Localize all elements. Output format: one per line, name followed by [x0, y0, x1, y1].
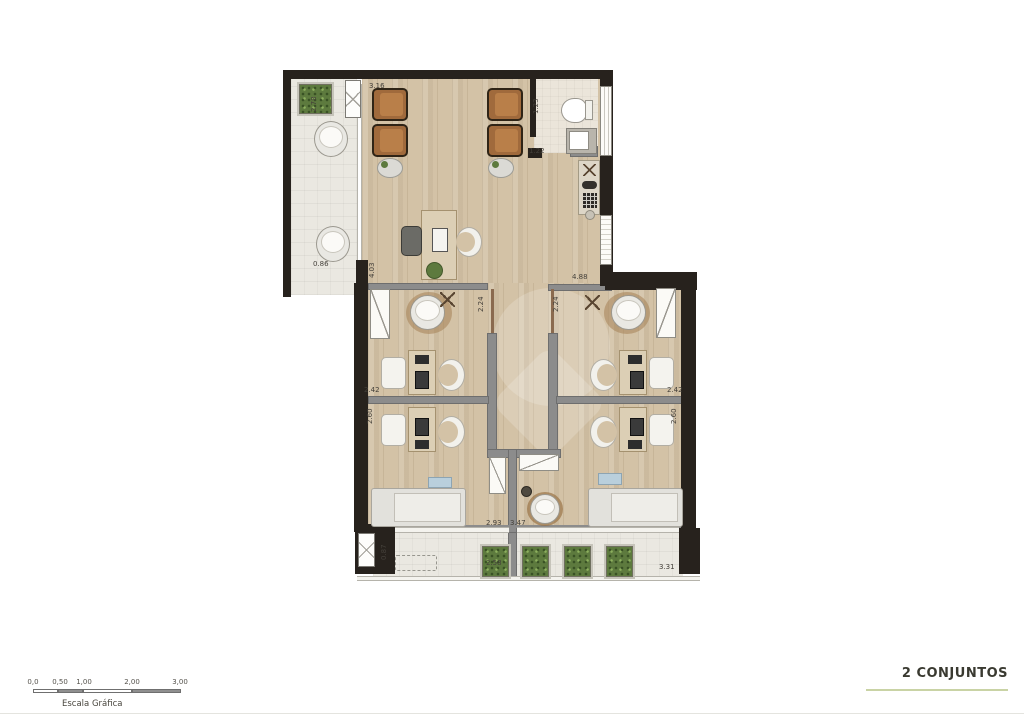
scale-caption: Escala Gráfica: [62, 699, 122, 709]
wall-stub-window-end: [356, 260, 368, 295]
wall-left-balcony: [283, 70, 291, 297]
shaft-bottom-left: [358, 533, 375, 567]
dim-label: 2.93: [486, 520, 502, 527]
vestibule-armchair: [530, 494, 560, 524]
workdesk-left-1: [408, 350, 436, 395]
scale-bar-segment: [83, 689, 132, 693]
plan-title: 2 CONJUNTOS: [860, 666, 1008, 681]
side-table-1: [377, 158, 403, 178]
reception-armchair-2: [372, 124, 408, 157]
reception-armchair-3: [487, 88, 523, 121]
wall-office-partition-right: [556, 396, 686, 404]
dim-label: 2.60: [671, 408, 678, 424]
balcony-lounge-chair-2: [316, 226, 350, 262]
toilet-fixture: [561, 98, 587, 123]
wall-top: [283, 70, 613, 79]
tub-chair-right-2: [590, 416, 617, 448]
cabinet-right-unit: [656, 288, 676, 338]
workdesk-right-2: [619, 407, 647, 452]
duct-right-copa: [600, 215, 612, 265]
title-underline: [866, 689, 1008, 691]
stool-left-office: [440, 292, 455, 307]
tv-left-lounge: [428, 477, 452, 488]
dim-label: 4.03: [369, 262, 376, 278]
wall-unit-divider-right: [548, 333, 558, 455]
side-table-2: [488, 158, 514, 178]
stool-right-office: [585, 295, 600, 310]
reception-armchair-4: [487, 124, 523, 157]
task-chair-left-1: [381, 357, 406, 389]
flower-icon: [521, 486, 532, 497]
dim-label: 3.47: [510, 520, 526, 527]
bench-outline: [395, 555, 437, 571]
sofa-right-lounge: [588, 488, 683, 527]
sheet-bottom-rule: [0, 713, 1024, 714]
dim-label: 2.60: [367, 408, 374, 424]
entry-door-right: [519, 454, 559, 471]
scale-bar-segment: [33, 689, 58, 693]
dim-label: 2.24: [553, 296, 560, 312]
balcony-lounge-chair-1: [314, 121, 348, 157]
vanity-sink: [569, 131, 589, 150]
scale-tick: 3,00: [172, 678, 188, 686]
tub-chair-left-2: [438, 416, 465, 448]
dim-label: 2.42: [667, 387, 683, 394]
wall-balcony-divider: [508, 532, 517, 578]
dim-label: 2.24: [478, 296, 485, 312]
sofa-left-lounge: [371, 488, 466, 527]
task-chair-right-1: [649, 357, 674, 389]
tub-chair-right-1: [590, 359, 617, 391]
side-table-plant-2: [492, 161, 499, 168]
faucet-icon: [583, 164, 596, 176]
right-office-lounge-chair: [611, 295, 646, 330]
floor-plan-sheet: 2.78 3.16 1.23 1.22 0.86 4.03 2.24 2.24 …: [0, 0, 1024, 724]
toilet-tank: [585, 100, 593, 120]
reception-office-chair: [401, 226, 422, 256]
dim-label: 2.42: [364, 387, 380, 394]
dim-label: 1.22: [529, 148, 545, 155]
dim-label: 0.86: [313, 261, 329, 268]
column-shaft-top: [345, 80, 361, 118]
planter-2: [522, 546, 549, 577]
window-lounge-right: [517, 527, 679, 533]
workdesk-right-1: [619, 350, 647, 395]
window-lounge-left: [383, 527, 509, 533]
planter-3: [564, 546, 591, 577]
tub-chair-left-1: [438, 359, 465, 391]
reception-monitor: [432, 228, 448, 252]
copa-appliance-grid: [583, 193, 597, 208]
scale-tick: 2,00: [124, 678, 140, 686]
duct-right-bathroom: [600, 86, 612, 156]
wall-office-partition-left: [368, 396, 489, 404]
wall-right-office: [681, 283, 696, 532]
wall-corner-bottom-right: [679, 528, 700, 574]
scale-tick: 0,50: [52, 678, 68, 686]
dim-label: 3.16: [369, 83, 385, 90]
dim-label: 4.88: [572, 274, 588, 281]
side-table-plant-1: [381, 161, 388, 168]
cabinet-left-unit: [370, 289, 390, 339]
dim-label: 0.87: [381, 544, 388, 560]
planter-4: [606, 546, 633, 577]
reception-guest-chair: [456, 227, 482, 257]
scale-bar-segment: [132, 689, 181, 693]
reception-plant: [426, 262, 443, 279]
door-frame-left-office: [491, 289, 494, 333]
dim-label: 2.58: [486, 560, 502, 567]
task-chair-left-2: [381, 414, 406, 446]
wall-unit-divider-left: [487, 333, 497, 455]
copa-sink: [582, 181, 597, 189]
workdesk-left-2: [408, 407, 436, 452]
reception-armchair-1: [372, 88, 408, 121]
tv-right-lounge: [598, 473, 622, 485]
copa-round-item: [585, 210, 595, 220]
scale-tick: 0,0: [27, 678, 38, 686]
entry-door-left: [489, 457, 506, 494]
scale-tick: 1,00: [76, 678, 92, 686]
scale-bar-segment: [58, 689, 83, 693]
dim-label: 3.31: [659, 564, 675, 571]
dim-label: 2.78: [311, 96, 318, 112]
dim-label: 1.23: [533, 98, 540, 114]
